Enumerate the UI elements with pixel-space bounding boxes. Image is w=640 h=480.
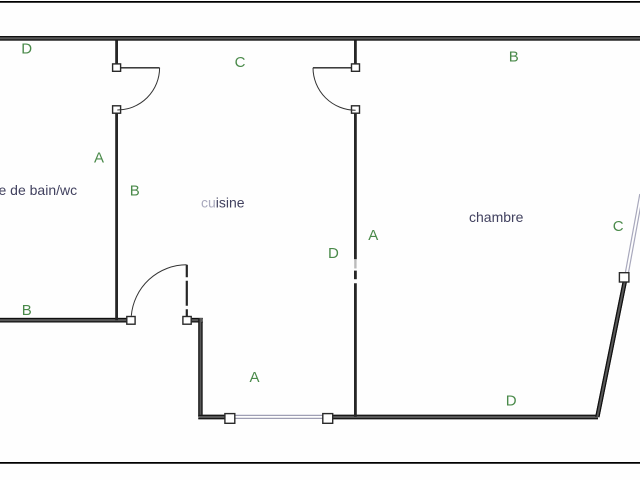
- svg-text:A: A: [94, 149, 104, 166]
- svg-text:C: C: [235, 54, 246, 71]
- svg-text:B: B: [130, 182, 140, 199]
- svg-text:chambre: chambre: [469, 209, 524, 225]
- svg-text:D: D: [328, 245, 339, 262]
- svg-text:A: A: [250, 369, 260, 386]
- svg-text:B: B: [509, 49, 519, 66]
- svg-text:A: A: [368, 227, 378, 244]
- svg-text:e de bain/wc: e de bain/wc: [0, 182, 77, 198]
- svg-text:cuisine: cuisine: [201, 195, 245, 211]
- svg-text:C: C: [613, 218, 624, 235]
- svg-text:D: D: [506, 392, 517, 409]
- svg-text:D: D: [21, 41, 32, 58]
- svg-text:B: B: [22, 302, 32, 319]
